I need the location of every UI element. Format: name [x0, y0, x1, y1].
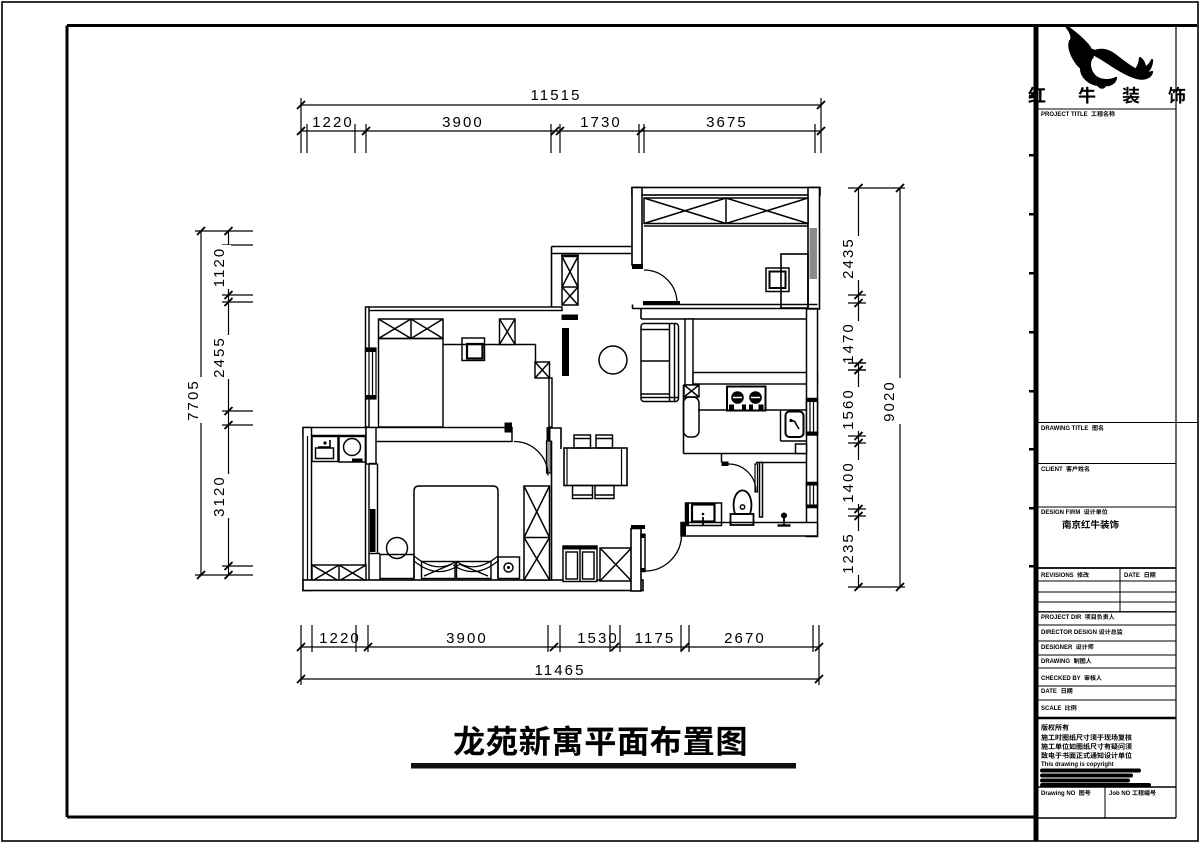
svg-text:3900: 3900 [446, 630, 488, 647]
svg-text:This drawing is copyright: This drawing is copyright [1041, 762, 1114, 768]
svg-text:1560: 1560 [840, 388, 857, 430]
svg-text:11515: 11515 [530, 87, 581, 104]
svg-text:DRAWING TITLE: DRAWING TITLE [1041, 426, 1088, 432]
svg-text:CLIENT: CLIENT [1041, 467, 1063, 473]
svg-text:1235: 1235 [840, 532, 857, 574]
svg-text:PROJECT TITLE: PROJECT TITLE [1041, 112, 1088, 118]
svg-text:3900: 3900 [442, 114, 484, 131]
svg-text:2455: 2455 [211, 336, 228, 378]
svg-text:3675: 3675 [706, 114, 748, 131]
svg-text:Job NO: Job NO [1109, 791, 1131, 797]
svg-text:1220: 1220 [319, 630, 361, 647]
svg-text:1175: 1175 [635, 630, 676, 647]
svg-text:1400: 1400 [840, 461, 857, 503]
svg-text:REVISIONS: REVISIONS [1041, 573, 1074, 579]
svg-text:DESIGN FIRM: DESIGN FIRM [1041, 510, 1080, 516]
svg-text:1220: 1220 [312, 114, 354, 131]
svg-text:DIRECTOR DESIGN: DIRECTOR DESIGN [1041, 630, 1097, 636]
svg-text:PROJECT DIR: PROJECT DIR [1041, 615, 1082, 621]
svg-text:1730: 1730 [580, 114, 622, 131]
svg-text:1530: 1530 [577, 630, 619, 647]
svg-text:2670: 2670 [724, 630, 766, 647]
svg-text:7705: 7705 [185, 379, 202, 421]
svg-text:1470: 1470 [840, 322, 857, 364]
svg-text:Drawing NO: Drawing NO [1041, 791, 1076, 797]
svg-text:CHECKED BY: CHECKED BY [1041, 676, 1081, 682]
svg-text:11465: 11465 [534, 662, 585, 679]
svg-text:1120: 1120 [211, 247, 228, 288]
svg-text:DRAWING: DRAWING [1041, 659, 1070, 665]
svg-text:3120: 3120 [211, 475, 228, 517]
svg-text:9020: 9020 [881, 380, 898, 422]
svg-text:DATE: DATE [1041, 689, 1057, 695]
svg-text:DATE: DATE [1124, 573, 1140, 579]
svg-text:SCALE: SCALE [1041, 706, 1061, 712]
svg-text:2435: 2435 [840, 237, 857, 279]
svg-text:DESIGNER: DESIGNER [1041, 645, 1073, 651]
